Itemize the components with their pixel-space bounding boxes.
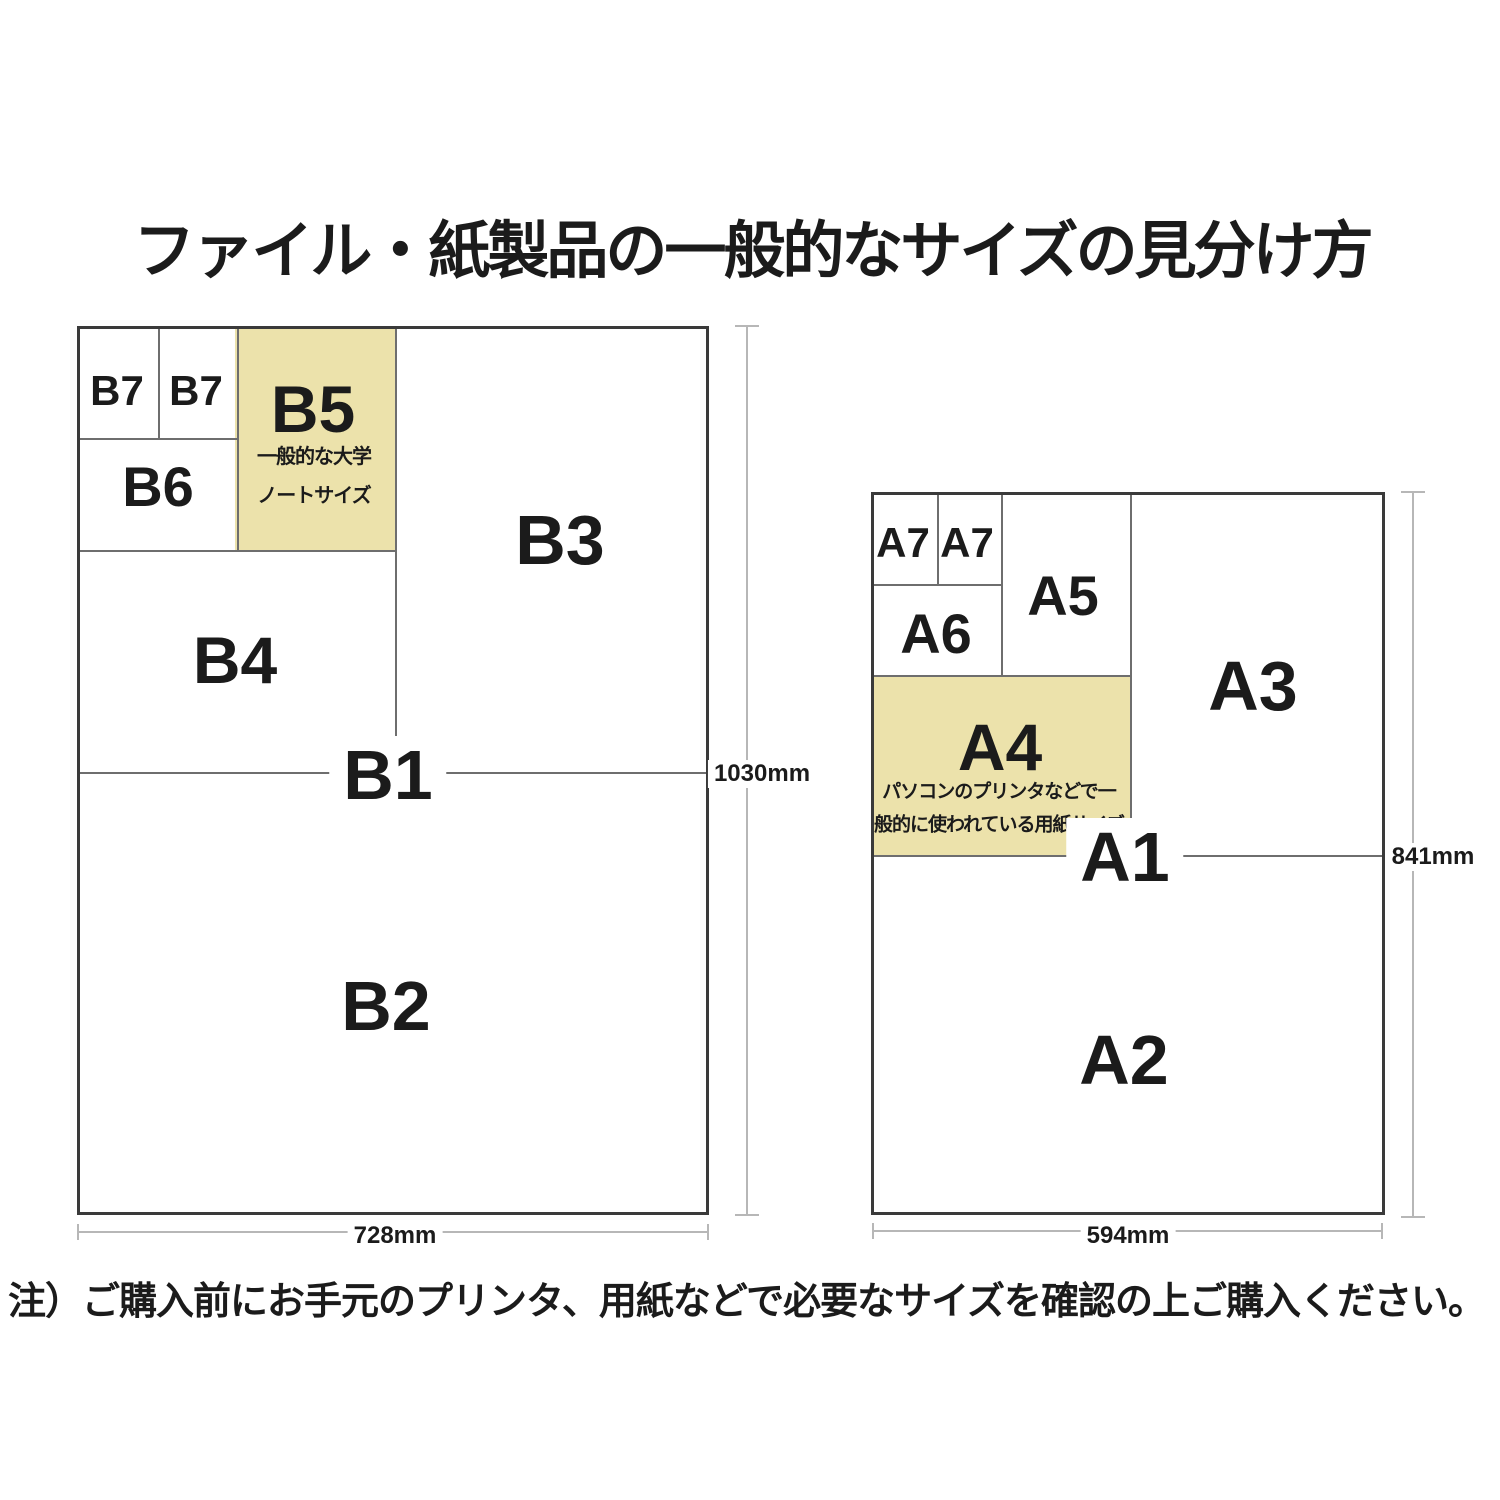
b4-label: B4 — [193, 627, 277, 693]
b7-left-label: B7 — [90, 370, 144, 412]
b-height-dim-tick-bottom — [735, 1214, 759, 1216]
a-height-dimension-label: 841mm — [1386, 843, 1481, 871]
a7-fold-line — [937, 495, 939, 585]
b1-label: B1 — [329, 736, 446, 814]
b5-fold-line — [237, 329, 239, 551]
b5-note-line1: 一般的な大学 — [257, 447, 371, 467]
a4-label: A4 — [958, 714, 1042, 780]
a7-left-label: A7 — [876, 522, 930, 564]
b2-label: B2 — [341, 971, 430, 1041]
a6-label: A6 — [900, 606, 972, 662]
b-width-dim-tick-left — [77, 1224, 79, 1240]
a-width-dimension-label: 594mm — [1081, 1222, 1176, 1250]
b3-label: B3 — [515, 505, 604, 575]
a2-label: A2 — [1079, 1025, 1168, 1095]
b7-right-label: B7 — [169, 370, 223, 412]
a1-label: A1 — [1066, 818, 1183, 896]
b6-label: B6 — [122, 459, 194, 515]
b-height-dimension-label: 1030mm — [708, 760, 816, 788]
a4-fold-line — [874, 675, 1132, 677]
a5-label: A5 — [1027, 568, 1099, 624]
a-height-dim-tick-bottom — [1401, 1216, 1425, 1218]
a-width-dim-tick-left — [872, 1223, 874, 1239]
a7-right-label: A7 — [940, 522, 994, 564]
a-height-dim-tick-top — [1401, 491, 1425, 493]
b-width-dim-tick-right — [707, 1224, 709, 1240]
paper-size-guide-page: ファイル・紙製品の一般的なサイズの見分け方 B7 B7 B6 B5 一般的な大学… — [0, 0, 1500, 1500]
page-title: ファイル・紙製品の一般的なサイズの見分け方 — [133, 221, 1370, 283]
footnote: 注）ご購入前にお手元のプリンタ、用紙などで必要なサイズを確認の上ご購入ください。 — [8, 1283, 1485, 1321]
b-height-dim-tick-top — [735, 325, 759, 327]
b5-note-line2: ノートサイズ — [257, 486, 370, 506]
a4-note-line1: パソコンのプリンタなどで一 — [882, 783, 1116, 802]
b7-fold-line — [158, 329, 160, 439]
a-width-dim-tick-right — [1381, 1223, 1383, 1239]
a3-label: A3 — [1208, 651, 1297, 721]
b-width-dimension-label: 728mm — [348, 1222, 443, 1250]
b5-label: B5 — [271, 376, 355, 442]
